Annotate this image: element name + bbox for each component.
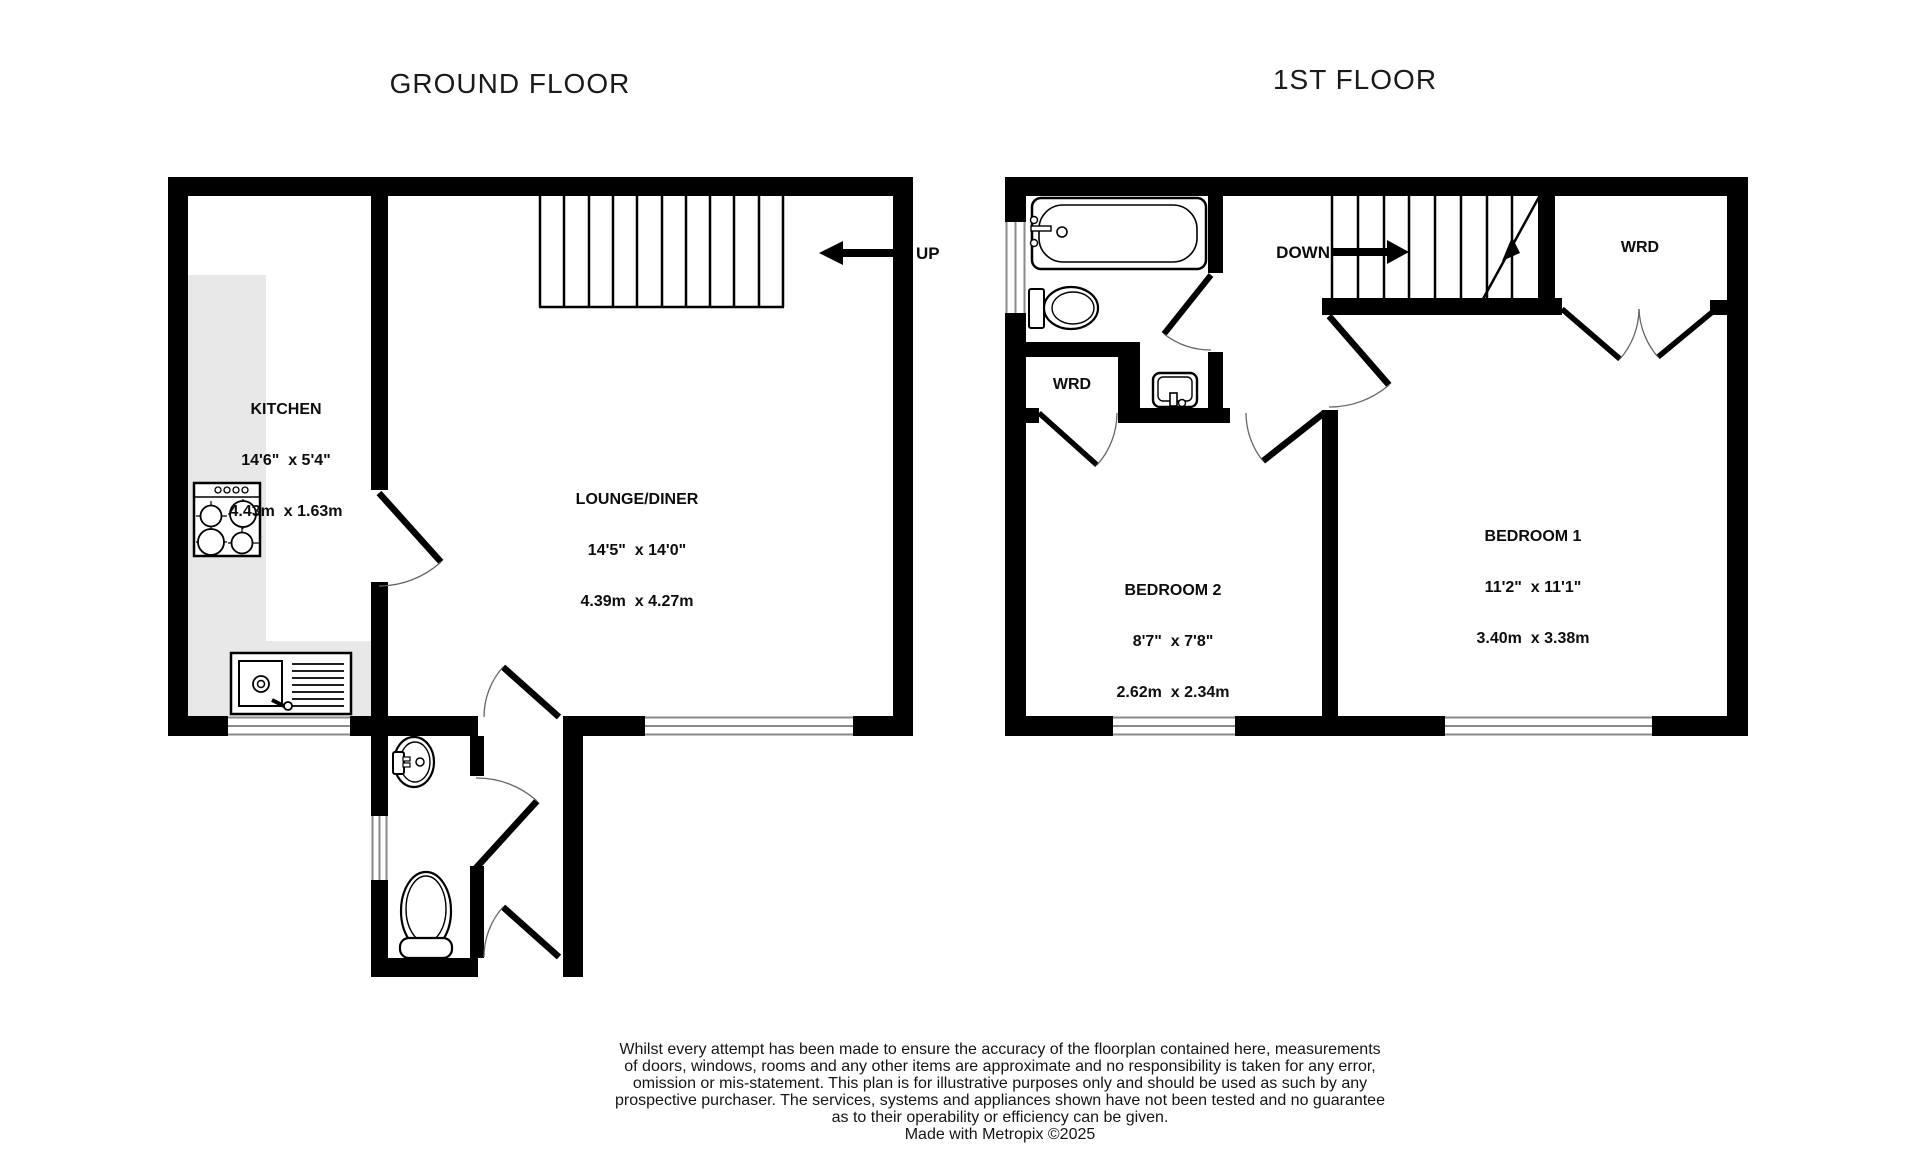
bedroom2-door xyxy=(1246,413,1324,461)
lounge-window xyxy=(645,716,853,736)
back-door xyxy=(484,907,559,957)
front-door xyxy=(484,667,559,717)
bedroom1-name: BEDROOM 1 xyxy=(1477,528,1590,545)
kitchen-name: KITCHEN xyxy=(230,401,343,418)
wc-basin xyxy=(393,737,434,787)
wardrobe-left-label: WRD xyxy=(1053,376,1091,394)
up-label: UP xyxy=(916,244,940,264)
wc-door xyxy=(476,778,537,868)
lounge-label: LOUNGE/DINER 14'5" x 14'0" 4.39m x 4.27m xyxy=(576,457,699,627)
down-label: DOWN xyxy=(1276,243,1330,263)
disclaimer-line: as to their operability or efficiency ca… xyxy=(520,1109,1480,1126)
kitchen-imperial: 14'6" x 5'4" xyxy=(230,452,343,469)
bedroom2-metric: 2.62m x 2.34m xyxy=(1117,684,1230,701)
wardrobe-left-door xyxy=(1039,413,1117,465)
bathroom-window xyxy=(1005,222,1026,313)
down-arrow-icon xyxy=(1333,240,1409,264)
ground-floor-title: GROUND FLOOR xyxy=(390,68,631,100)
kitchen-metric: 4.43m x 1.63m xyxy=(230,503,343,520)
disclaimer-line: of doors, windows, rooms and any other i… xyxy=(520,1058,1480,1075)
lounge-imperial: 14'5" x 14'0" xyxy=(576,542,699,559)
landing-basin xyxy=(1153,373,1197,407)
wc-toilet xyxy=(400,872,452,958)
disclaimer-line: omission or mis-statement. This plan is … xyxy=(520,1075,1480,1092)
first-floor-title: 1ST FLOOR xyxy=(1273,64,1437,96)
lounge-name: LOUNGE/DINER xyxy=(576,491,699,508)
wardrobe-right-label: WRD xyxy=(1621,239,1659,257)
bedroom2-window xyxy=(1113,716,1235,736)
lounge-metric: 4.39m x 4.27m xyxy=(576,593,699,610)
disclaimer-line: Whilst every attempt has been made to en… xyxy=(520,1041,1480,1058)
disclaimer-text: Whilst every attempt has been made to en… xyxy=(520,1041,1480,1143)
kitchen-window xyxy=(228,716,350,736)
bedroom2-name: BEDROOM 2 xyxy=(1117,582,1230,599)
wc-window xyxy=(371,816,388,880)
floorplan-canvas xyxy=(0,0,1920,1151)
bathroom-toilet xyxy=(1029,287,1098,329)
bedroom1-imperial: 11'2" x 11'1" xyxy=(1477,579,1590,596)
disclaimer-line: prospective purchaser. The services, sys… xyxy=(520,1092,1480,1109)
bedroom2-label: BEDROOM 2 8'7" x 7'8" 2.62m x 2.34m xyxy=(1117,548,1230,718)
floorplan-page: GROUND FLOOR 1ST FLOOR KITCHEN 14'6" x 5… xyxy=(0,0,1920,1151)
kitchen-label: KITCHEN 14'6" x 5'4" 4.43m x 1.63m xyxy=(230,367,343,537)
bathroom-door xyxy=(1164,275,1211,350)
bedroom1-metric: 3.40m x 3.38m xyxy=(1477,630,1590,647)
wardrobe-right-doors xyxy=(1562,309,1716,359)
staircase-up xyxy=(539,196,784,307)
kitchen-sink xyxy=(231,653,351,714)
kitchen-door xyxy=(379,493,441,586)
up-arrow-icon xyxy=(819,241,895,265)
bedroom2-imperial: 8'7" x 7'8" xyxy=(1117,633,1230,650)
bedroom1-label: BEDROOM 1 11'2" x 11'1" 3.40m x 3.38m xyxy=(1477,494,1590,664)
bedroom1-window xyxy=(1445,716,1652,736)
bedroom1-door xyxy=(1329,316,1389,407)
made-with-metropix: Made with Metropix ©2025 xyxy=(520,1126,1480,1143)
ground-floor-windows xyxy=(228,716,853,880)
bathtub xyxy=(1031,198,1207,269)
ground-floor-plan xyxy=(168,177,913,977)
